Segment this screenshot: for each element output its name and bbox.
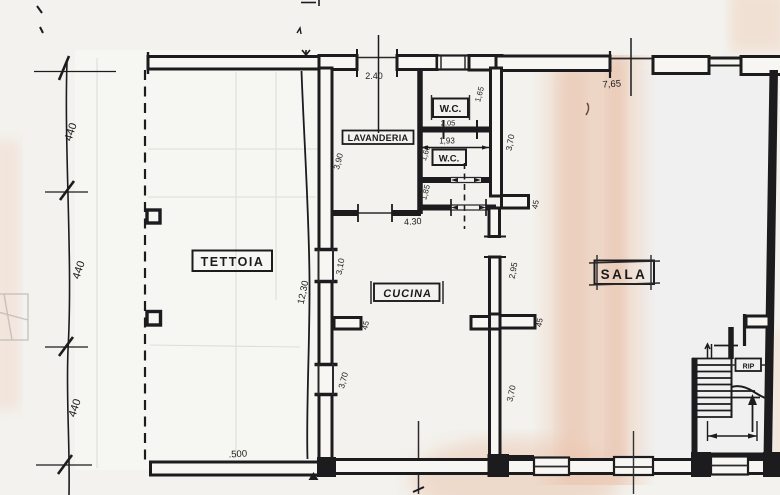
svg-text:RIP: RIP (743, 364, 755, 371)
svg-text:4.30: 4.30 (404, 216, 422, 227)
svg-text:2.40: 2.40 (365, 71, 383, 81)
svg-text:2.05: 2.05 (441, 119, 456, 128)
svg-text:TETTOIA: TETTOIA (201, 255, 265, 269)
svg-text:LAVANDERIA: LAVANDERIA (348, 133, 409, 143)
svg-text:SALA: SALA (601, 267, 648, 282)
svg-text:W.C.: W.C. (439, 154, 460, 165)
svg-text:CUCINA: CUCINA (382, 288, 432, 300)
svg-text:1,93: 1,93 (439, 137, 455, 146)
svg-text:.500: .500 (228, 449, 247, 461)
svg-text:W.C.: W.C. (440, 104, 462, 115)
svg-text:7,65: 7,65 (602, 78, 621, 90)
